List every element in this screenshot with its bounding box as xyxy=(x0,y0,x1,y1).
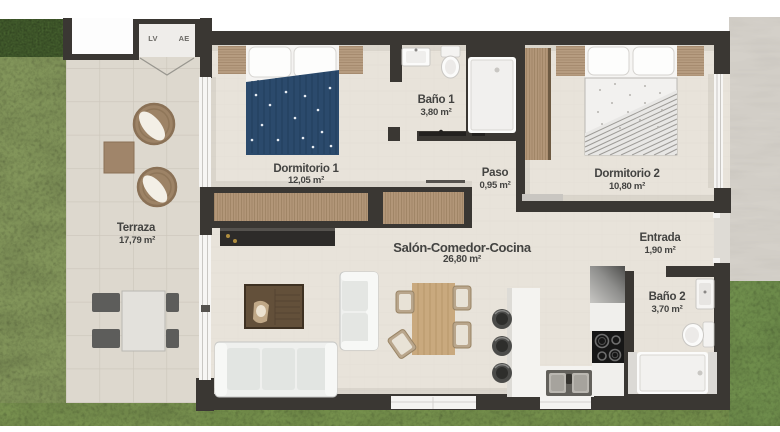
svg-text:Baño 2: Baño 2 xyxy=(649,291,686,303)
svg-text:LV: LV xyxy=(148,34,157,43)
svg-text:0,95 m²: 0,95 m² xyxy=(480,180,511,191)
svg-text:Entrada: Entrada xyxy=(639,232,681,244)
svg-text:17,79 m²: 17,79 m² xyxy=(119,235,155,246)
svg-text:12,05 m²: 12,05 m² xyxy=(288,175,324,186)
svg-text:3,80 m²: 3,80 m² xyxy=(421,107,452,118)
svg-text:Terraza: Terraza xyxy=(117,222,156,234)
svg-text:Dormitorio 1: Dormitorio 1 xyxy=(273,163,339,175)
svg-text:Salón-Comedor-Cocina: Salón-Comedor-Cocina xyxy=(393,240,532,255)
svg-text:AE: AE xyxy=(179,34,190,43)
svg-text:Paso: Paso xyxy=(482,167,509,179)
svg-text:1,90 m²: 1,90 m² xyxy=(645,245,676,256)
svg-text:10,80 m²: 10,80 m² xyxy=(609,181,645,192)
svg-text:3,70 m²: 3,70 m² xyxy=(652,304,683,315)
svg-text:26,80 m²: 26,80 m² xyxy=(443,254,482,265)
svg-text:Dormitorio 2: Dormitorio 2 xyxy=(594,168,659,180)
svg-text:Baño 1: Baño 1 xyxy=(418,94,456,106)
